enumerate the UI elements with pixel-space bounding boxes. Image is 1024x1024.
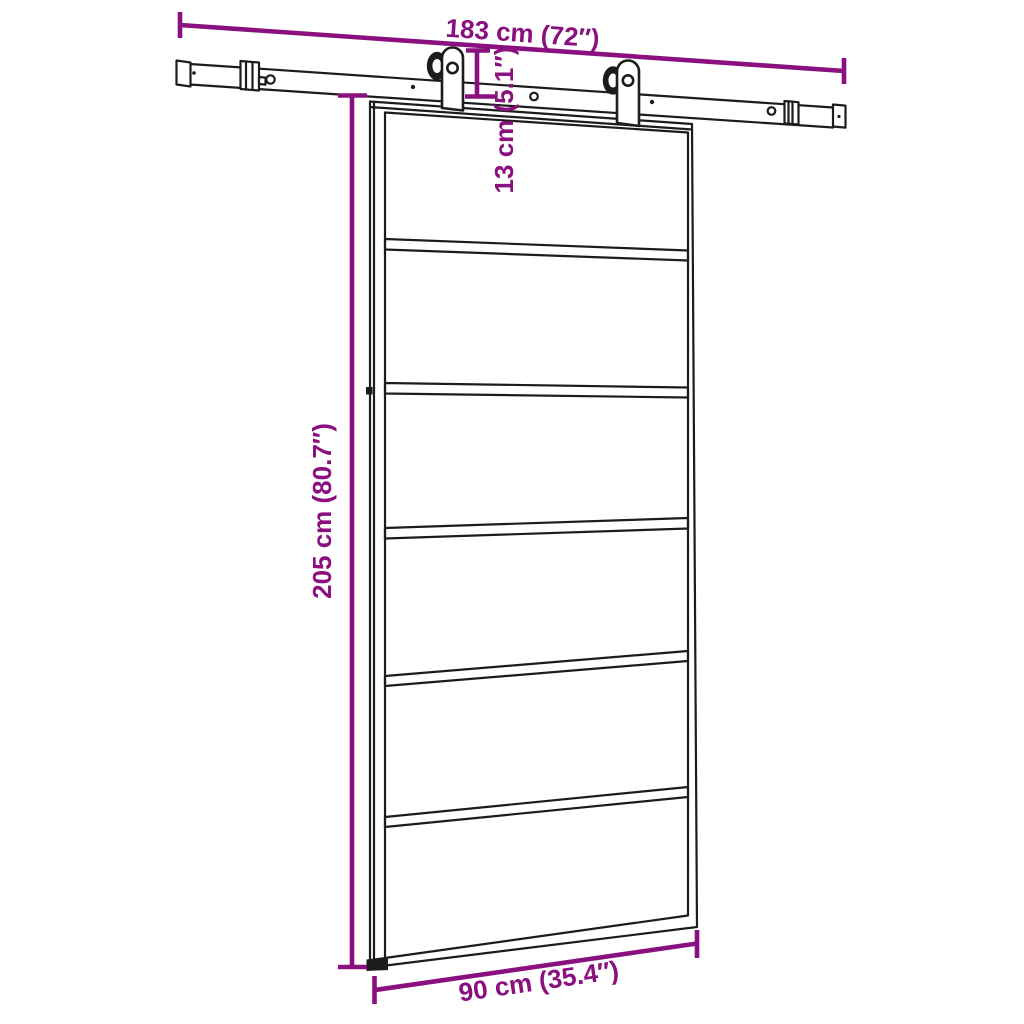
rail-pin-1 bbox=[411, 85, 415, 89]
rail-left-end-cap bbox=[177, 61, 191, 87]
label-door-width: 90 cm (35.4″) bbox=[457, 955, 621, 1008]
left-hanger-bolt-hole bbox=[447, 63, 457, 73]
right-hanger-strap bbox=[617, 61, 639, 127]
rail-screw-hole-mid bbox=[530, 93, 538, 101]
left-hanger-strap bbox=[442, 48, 463, 111]
left-roller-wheel-hub bbox=[432, 59, 441, 73]
rail-cap-pin-left bbox=[192, 71, 196, 75]
dimension-line-door-height bbox=[338, 96, 367, 968]
label-door-height: 205 cm (80.7″) bbox=[307, 423, 337, 599]
rail-screw-hole-right bbox=[768, 107, 776, 115]
diagram-canvas: 183 cm (72″) 13 cm (5.1″) 205 cm (80.7″)… bbox=[0, 0, 1024, 1024]
label-rail-to-door-drop: 13 cm (5.1″) bbox=[489, 47, 519, 194]
rail-left-connector-tab bbox=[259, 77, 266, 85]
right-hanger-bolt-hole bbox=[623, 75, 633, 85]
product-dimension-diagram: 183 cm (72″) 13 cm (5.1″) 205 cm (80.7″)… bbox=[0, 0, 1024, 1024]
door-edge-screw bbox=[366, 387, 373, 395]
sliding-door bbox=[370, 102, 697, 968]
rail-screw-hole-left bbox=[266, 75, 274, 83]
rail-left-connector bbox=[241, 61, 260, 91]
rail-cap-pin-right bbox=[837, 115, 840, 118]
rail-pin-2 bbox=[650, 100, 654, 104]
